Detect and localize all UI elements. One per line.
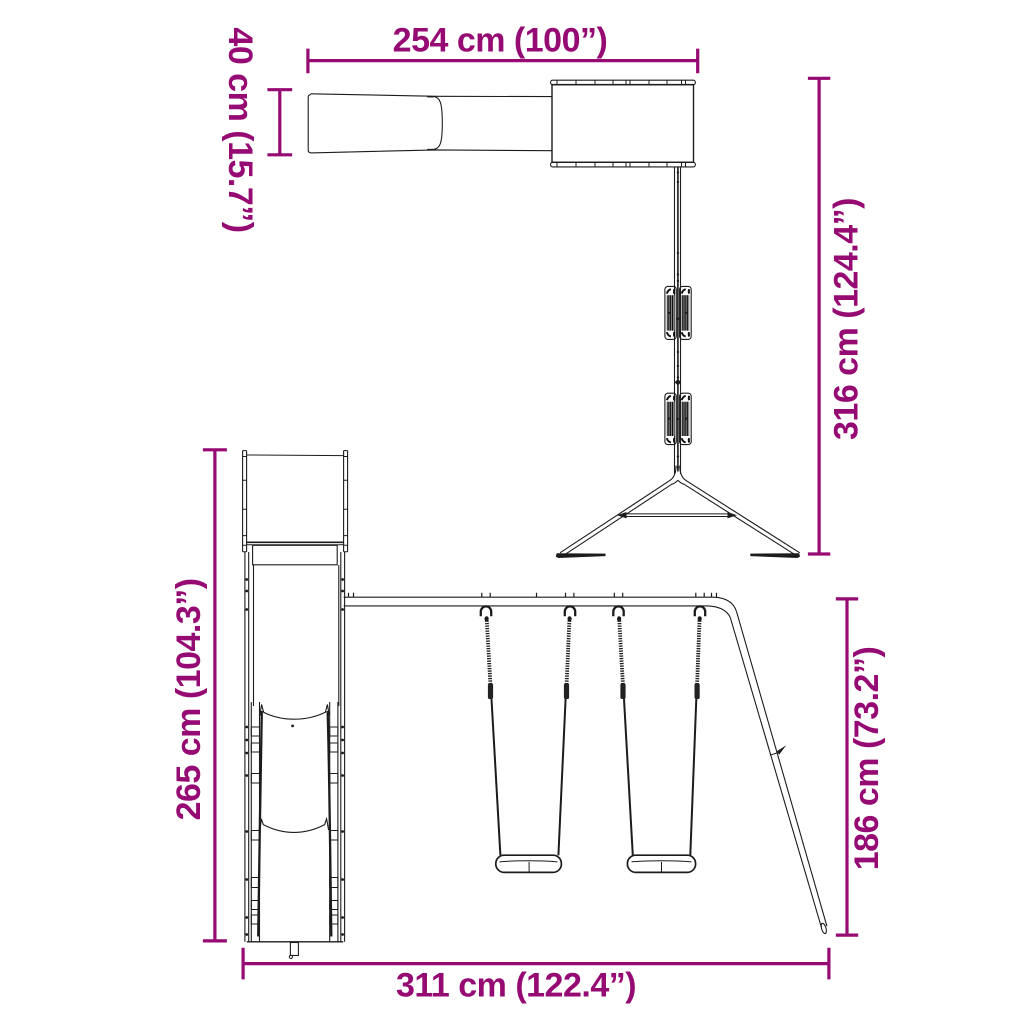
svg-text:254 cm (100”): 254 cm (100”) <box>393 22 608 60</box>
svg-text:316 cm (124.4”): 316 cm (124.4”) <box>828 198 866 440</box>
svg-text:40 cm (15.7”): 40 cm (15.7”) <box>221 27 259 232</box>
svg-text:186 cm (73.2”): 186 cm (73.2”) <box>848 647 886 871</box>
svg-text:311 cm (122.4”): 311 cm (122.4”) <box>396 967 636 1005</box>
svg-text:265 cm (104.3”): 265 cm (104.3”) <box>170 578 208 820</box>
